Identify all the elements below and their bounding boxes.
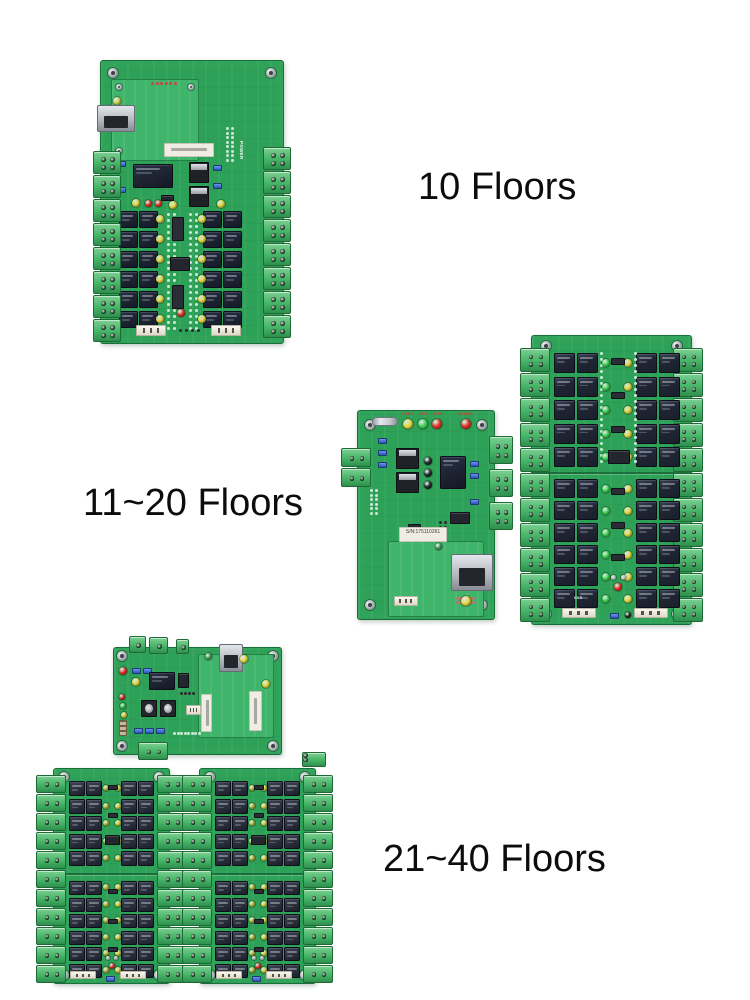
relay-label-mark	[287, 785, 297, 787]
relay-label-mark	[124, 859, 130, 861]
led-indicator	[156, 235, 164, 243]
relay-label-mark	[557, 509, 565, 511]
terminal-hole	[271, 161, 276, 166]
terminal-hole	[504, 453, 509, 458]
connector-pin	[405, 599, 407, 603]
terminal-hole	[682, 412, 687, 417]
pad-dot	[634, 436, 637, 439]
relay-label-mark	[89, 906, 95, 908]
connector-pin	[157, 328, 160, 333]
relay	[138, 881, 154, 895]
relay-label-mark	[218, 807, 224, 809]
relay-label-mark	[235, 902, 245, 904]
terminal-hole	[529, 455, 534, 460]
pad-dot	[231, 141, 234, 144]
terminal-hole	[504, 510, 509, 515]
relay-label-mark	[89, 918, 99, 920]
relay	[554, 567, 575, 586]
pad-dot	[634, 388, 637, 391]
terminal-hole	[539, 512, 544, 517]
relay-label-mark	[226, 319, 234, 321]
rj45-slot	[224, 655, 238, 668]
terminal-block	[520, 598, 550, 622]
relay-label-mark	[89, 889, 95, 891]
relay	[121, 898, 137, 912]
terminal-hole	[529, 587, 534, 592]
led-indicator	[461, 596, 471, 606]
relay-label-mark	[89, 939, 95, 941]
relay-label-mark	[141, 918, 151, 920]
terminal-hole	[504, 486, 509, 491]
relay-label-mark	[124, 939, 130, 941]
resistor	[119, 720, 127, 736]
relay-label-mark	[72, 902, 82, 904]
relay-label-mark	[639, 432, 647, 434]
jumper-component	[213, 183, 222, 189]
terminal-hole	[191, 953, 196, 958]
relay-label-mark	[122, 319, 130, 321]
led-indicator	[249, 855, 255, 861]
relay-label-mark	[226, 219, 234, 221]
led-indicator	[602, 573, 610, 581]
terminal-hole	[271, 305, 276, 310]
terminal-hole	[682, 405, 687, 410]
relay	[284, 816, 300, 831]
relay-label-mark	[122, 299, 130, 301]
relay-label-mark	[639, 381, 652, 383]
relay-label-mark	[557, 483, 570, 485]
terminal-hole	[101, 205, 106, 210]
relay-label-mark	[218, 935, 228, 937]
led-indicator	[261, 803, 267, 809]
terminal-hole	[45, 877, 50, 882]
relay	[86, 881, 102, 895]
terminal-hole	[312, 839, 317, 844]
terminal-hole	[201, 839, 206, 844]
product-image: 10 Floors 11~20 Floors 21~40 Floors POWE…	[0, 0, 750, 1000]
relay-label-mark	[206, 315, 217, 317]
terminal-hole	[682, 430, 687, 435]
relay-label-mark	[639, 527, 652, 529]
relay-label-mark	[72, 803, 82, 805]
pad-dot	[169, 82, 172, 85]
led-indicator	[103, 803, 109, 809]
trimmer-potentiometer	[141, 700, 157, 717]
dip-ic	[611, 358, 625, 365]
pad-dot	[167, 285, 170, 288]
relay-label-mark	[557, 531, 565, 533]
relay-label-mark	[218, 842, 224, 844]
relay-label-mark	[72, 820, 82, 822]
relay	[267, 851, 283, 866]
relay	[138, 781, 154, 796]
terminal-hole	[45, 801, 50, 806]
pad-dot	[167, 225, 170, 228]
terminal-hole	[539, 355, 544, 360]
led-indicator	[132, 678, 140, 686]
terminal-block	[520, 573, 550, 597]
relay	[659, 567, 680, 586]
relay	[636, 400, 657, 420]
relay	[267, 781, 283, 796]
pad-dot	[634, 394, 637, 397]
relay-label-mark	[287, 807, 293, 809]
terminal-hole	[496, 510, 501, 515]
connector-pin	[218, 328, 221, 333]
terminal-hole	[101, 261, 106, 266]
terminal-hole	[682, 612, 687, 617]
terminal-hole	[101, 309, 106, 314]
pad-dot	[456, 597, 459, 600]
terminal-hole	[201, 858, 206, 863]
connector-pin	[232, 328, 235, 333]
relay	[232, 914, 248, 928]
terminal-hole	[101, 301, 106, 306]
pad-dot	[180, 732, 183, 735]
relay	[86, 851, 102, 866]
pad-dot	[195, 303, 198, 306]
terminal-hole	[312, 934, 317, 939]
screw-center	[271, 744, 276, 749]
pad-dot	[600, 418, 603, 421]
connector-pin	[190, 708, 191, 712]
relay-label-mark	[124, 838, 134, 840]
terminal-hole	[280, 297, 285, 302]
terminal-hole	[110, 325, 115, 330]
pad-dot	[173, 273, 176, 276]
relay	[577, 479, 598, 498]
pad-dot	[226, 127, 229, 130]
relay-label-mark	[141, 785, 151, 787]
relay	[636, 377, 657, 397]
relay-label-mark	[287, 968, 297, 970]
relay-label-mark	[270, 935, 280, 937]
led-indicator	[249, 967, 255, 973]
relay	[215, 851, 231, 866]
pad-dot	[375, 494, 378, 497]
board-seam-highlight	[532, 474, 691, 475]
relay-label-mark	[580, 575, 588, 577]
led-indicator	[624, 551, 632, 559]
relay-label-mark	[639, 361, 647, 363]
ic-chip	[105, 835, 120, 845]
relay-label-mark	[89, 785, 99, 787]
terminal-hole	[692, 530, 697, 535]
pad-dot	[226, 145, 229, 148]
terminal-hole	[322, 896, 327, 901]
relay-label-mark	[270, 885, 280, 887]
screw-hole	[477, 420, 487, 430]
terminal-block	[263, 267, 291, 290]
terminal-hole	[176, 839, 181, 844]
terminal-block	[93, 271, 121, 294]
relay-label-mark	[639, 531, 647, 533]
led-indicator	[103, 855, 109, 861]
jumper-component	[610, 613, 619, 619]
pad-dot	[600, 460, 603, 463]
terminal-hole	[692, 405, 697, 410]
terminal-hole	[692, 605, 697, 610]
pad-dot	[370, 503, 373, 506]
relay-label-mark	[72, 968, 82, 970]
pad-dot	[167, 297, 170, 300]
relay-label-mark	[270, 785, 280, 787]
relay-label-mark	[580, 455, 588, 457]
pad-dot	[189, 243, 192, 246]
trimmer-dial	[145, 704, 153, 714]
relay	[554, 501, 575, 520]
relay-label-mark	[124, 842, 130, 844]
terminal-hole	[271, 249, 276, 254]
relay-label-mark	[124, 789, 130, 791]
connector-pin	[225, 328, 228, 333]
terminal-block	[520, 548, 550, 572]
relay-label-mark	[235, 935, 245, 937]
wire-connector	[70, 971, 96, 979]
relay-label-mark	[141, 935, 151, 937]
screw-hole	[117, 651, 127, 661]
pad-dot	[179, 329, 182, 332]
led-indicator	[624, 359, 632, 367]
terminal-hole	[271, 273, 276, 278]
relay-label-mark	[580, 404, 593, 406]
pad-dot	[173, 309, 176, 312]
terminal-hole	[280, 161, 285, 166]
wire-connector	[211, 325, 241, 336]
heatsink-tab	[399, 450, 417, 456]
serial-number-sticker	[201, 694, 212, 732]
terminal-hole	[271, 321, 276, 326]
relay	[223, 271, 242, 288]
terminal-hole	[157, 750, 162, 755]
terminal-block	[303, 851, 333, 869]
terminal-block	[36, 927, 66, 945]
relay-label-mark	[141, 855, 151, 857]
terminal-hole	[280, 225, 285, 230]
relay	[284, 914, 300, 928]
terminal-hole	[692, 430, 697, 435]
relay-label-mark	[270, 951, 280, 953]
terminal-hole	[529, 605, 534, 610]
voltage-regulator	[189, 186, 209, 207]
led-indicator	[261, 934, 267, 940]
relay	[232, 781, 248, 796]
relay	[232, 834, 248, 849]
terminal-hole	[312, 915, 317, 920]
relay-label-mark	[206, 219, 214, 221]
terminal-hole	[529, 355, 534, 360]
dip-ic	[172, 285, 184, 309]
relay-label-mark	[662, 531, 670, 533]
led-indicator	[249, 803, 255, 809]
relay	[121, 851, 137, 866]
terminal-hole	[201, 972, 206, 977]
relay-label-mark	[89, 935, 99, 937]
relay	[138, 947, 154, 961]
screw-center	[118, 86, 121, 89]
relay-label-mark	[580, 553, 588, 555]
terminal-block	[36, 794, 66, 812]
led-indicator	[260, 956, 264, 960]
relay-label-mark	[235, 889, 241, 891]
terminal-hole	[176, 801, 181, 806]
relay-label-mark	[141, 968, 151, 970]
terminal-hole	[176, 915, 181, 920]
jumper-component	[470, 461, 479, 467]
led-indicator	[103, 820, 109, 826]
terminal-hole	[191, 896, 196, 901]
terminal-hole	[529, 512, 534, 517]
relay	[636, 447, 657, 467]
led-indicator	[624, 595, 632, 603]
relay-label-mark	[287, 855, 297, 857]
jumper-component	[252, 976, 261, 982]
led-indicator	[403, 419, 413, 429]
terminal-hole	[322, 858, 327, 863]
jumper-component	[132, 668, 141, 674]
pad-dot	[231, 150, 234, 153]
terminal-hole	[110, 277, 115, 282]
terminal-block	[93, 295, 121, 318]
relay	[554, 353, 575, 373]
relay-label-mark	[580, 385, 588, 387]
relay-label-mark	[89, 807, 95, 809]
terminal-hole	[682, 605, 687, 610]
terminal-hole	[101, 229, 106, 234]
silkscreen-text: GND	[574, 596, 583, 600]
relay-label-mark	[141, 902, 151, 904]
relay	[659, 424, 680, 444]
pad-dot	[167, 237, 170, 240]
relay-label-mark	[142, 255, 153, 257]
terminal-block	[520, 423, 550, 447]
wire-connector	[266, 971, 292, 979]
relay-label-mark	[287, 859, 293, 861]
relay-label-mark	[235, 859, 241, 861]
pad-dot	[194, 732, 197, 735]
pad-dot	[192, 692, 195, 695]
led-indicator	[602, 529, 610, 537]
terminal-hole	[110, 165, 115, 170]
dip-ic	[611, 488, 625, 495]
pad-dot	[634, 442, 637, 445]
terminal-hole	[529, 555, 534, 560]
relay-label-mark	[218, 859, 224, 861]
relay-label-mark	[557, 527, 570, 529]
relay-label-mark	[124, 785, 134, 787]
terminal-hole	[539, 612, 544, 617]
relay	[577, 377, 598, 397]
terminal-hole	[692, 380, 697, 385]
terminal-hole	[166, 877, 171, 882]
led-indicator	[177, 309, 185, 317]
terminal-block	[36, 870, 66, 888]
relay-label-mark	[122, 239, 130, 241]
terminal-hole	[280, 233, 285, 238]
relay-label-mark	[218, 785, 228, 787]
relay-label-mark	[287, 789, 293, 791]
pad-dot	[375, 503, 378, 506]
connector-pin	[82, 974, 84, 977]
relay	[267, 799, 283, 814]
led-indicator	[198, 235, 206, 243]
terminal-hole	[166, 858, 171, 863]
relay-label-mark	[639, 509, 647, 511]
relay	[284, 947, 300, 961]
relay-label-mark	[206, 279, 214, 281]
silkscreen-text: POWER	[458, 412, 473, 416]
screw-hole	[365, 600, 375, 610]
terminal-hole	[280, 257, 285, 262]
relay-label-mark	[443, 460, 459, 462]
relay-label-mark	[142, 315, 153, 317]
capacitor	[372, 417, 398, 426]
terminal-hole	[322, 972, 327, 977]
relay-label-mark	[218, 820, 228, 822]
relay-label-mark	[639, 571, 652, 573]
relay-label-mark	[89, 824, 95, 826]
terminal-block	[520, 473, 550, 497]
led-indicator	[624, 507, 632, 515]
terminal-hole	[271, 209, 276, 214]
relay-label-mark	[72, 838, 82, 840]
pad-dot	[173, 249, 176, 252]
terminal-hole	[201, 801, 206, 806]
relay	[577, 400, 598, 420]
pad-dot	[167, 219, 170, 222]
terminal-hole	[110, 301, 115, 306]
terminal-hole	[682, 455, 687, 460]
relay-label-mark	[270, 824, 276, 826]
relay	[69, 799, 85, 814]
terminal-hole	[692, 437, 697, 442]
pad-dot	[189, 321, 192, 324]
dip-ic	[611, 554, 625, 561]
relay-label-mark	[235, 922, 241, 924]
terminal-block	[520, 348, 550, 372]
relay-label-mark	[639, 505, 652, 507]
connector-pin	[138, 974, 140, 977]
loose-terminal-plug	[302, 752, 326, 767]
relay-label-mark	[218, 824, 224, 826]
pad-dot	[189, 237, 192, 240]
relay	[232, 947, 248, 961]
relay	[577, 447, 598, 467]
connector-pin	[284, 974, 286, 977]
pad-dot	[180, 692, 183, 695]
relay-label-mark	[580, 531, 588, 533]
relay	[577, 424, 598, 444]
terminal-block	[341, 448, 371, 467]
relay	[284, 851, 300, 866]
relay-label-mark	[270, 889, 276, 891]
connector-pin	[228, 974, 230, 977]
terminal-hole	[176, 877, 181, 882]
relay-label-mark	[270, 803, 280, 805]
led-indicator	[106, 956, 110, 960]
terminal-block	[176, 639, 189, 654]
led-indicator	[114, 956, 118, 960]
terminal-hole	[280, 177, 285, 182]
relay-label-mark	[142, 219, 150, 221]
terminal-hole	[682, 437, 687, 442]
relay-label-mark	[270, 968, 280, 970]
relay-label-mark	[122, 215, 133, 217]
relay-label-mark	[122, 259, 130, 261]
terminal-hole	[504, 519, 509, 524]
relay-label-mark	[218, 855, 228, 857]
terminal-hole	[529, 362, 534, 367]
